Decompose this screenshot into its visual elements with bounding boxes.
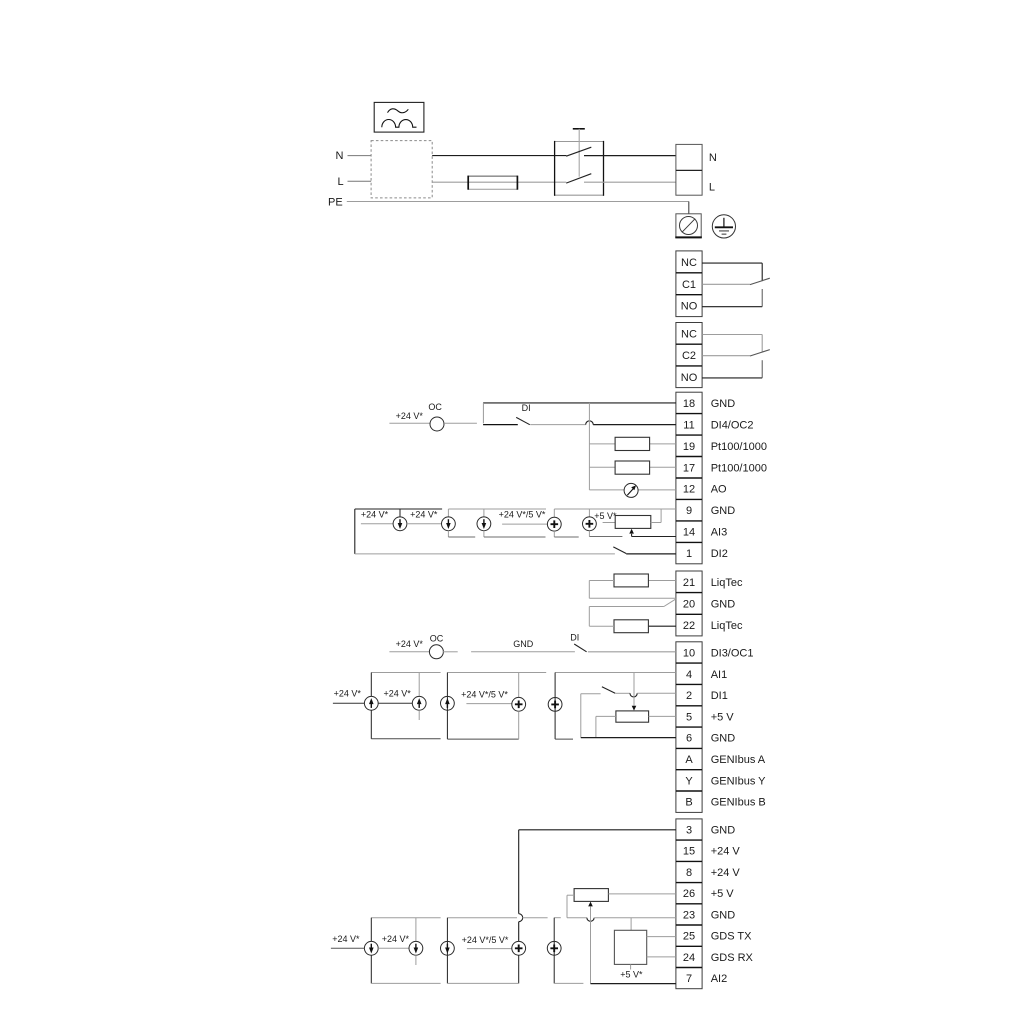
svg-text:GND: GND [711,505,736,517]
svg-text:1: 1 [686,548,692,560]
svg-text:+5 V: +5 V [711,888,735,900]
svg-text:GND: GND [711,398,736,410]
svg-text:17: 17 [683,462,695,474]
svg-text:2: 2 [686,690,692,702]
svg-text:+24 V: +24 V [711,867,741,879]
svg-text:+24 V*: +24 V* [334,689,362,699]
svg-text:4: 4 [686,669,692,681]
svg-text:GND: GND [711,733,736,745]
svg-text:A: A [685,754,693,766]
svg-text:PE: PE [328,197,343,209]
svg-text:GENIbus B: GENIbus B [711,797,766,809]
svg-text:AO: AO [711,484,727,496]
svg-text:N: N [709,152,717,164]
svg-text:DI: DI [570,632,579,642]
svg-text:20: 20 [683,598,695,610]
svg-text:26: 26 [683,888,695,900]
svg-text:3: 3 [686,825,692,837]
svg-text:+24 V*: +24 V* [361,510,389,520]
svg-text:+24 V*: +24 V* [396,411,424,421]
svg-text:12: 12 [683,484,695,496]
svg-text:Pt100/1000: Pt100/1000 [711,441,767,453]
svg-text:+5 V: +5 V [711,711,735,723]
svg-text:B: B [685,797,692,809]
svg-text:+5 V*: +5 V* [594,511,617,521]
svg-text:+24 V*/5 V*: +24 V*/5 V* [462,935,509,945]
svg-text:GDS RX: GDS RX [711,952,754,964]
svg-text:GND: GND [711,909,736,921]
svg-text:+24 V*: +24 V* [396,639,424,649]
svg-text:7: 7 [686,973,692,985]
svg-text:OC: OC [428,402,442,412]
svg-text:NC: NC [681,328,697,340]
svg-text:21: 21 [683,577,695,589]
svg-text:GENIbus A: GENIbus A [711,754,766,766]
svg-text:GND: GND [513,639,534,649]
svg-text:22: 22 [683,620,695,632]
svg-text:GDS TX: GDS TX [711,931,752,943]
svg-text:AI3: AI3 [711,527,728,539]
svg-text:+24 V*: +24 V* [332,934,360,944]
svg-text:5: 5 [686,711,692,723]
svg-text:DI: DI [522,403,531,413]
svg-text:25: 25 [683,931,695,943]
svg-text:GENIbus Y: GENIbus Y [711,775,766,787]
svg-text:LiqTec: LiqTec [711,620,743,632]
svg-text:DI2: DI2 [711,548,728,560]
svg-text:6: 6 [686,733,692,745]
svg-text:+24 V*/5 V*: +24 V*/5 V* [499,509,546,519]
svg-text:15: 15 [683,846,695,858]
svg-text:+24 V*: +24 V* [384,689,412,699]
svg-text:+24 V: +24 V [711,846,741,858]
svg-text:AI2: AI2 [711,973,728,985]
svg-text:N: N [336,150,344,162]
svg-text:+5 V*: +5 V* [620,970,643,980]
svg-text:Pt100/1000: Pt100/1000 [711,462,767,474]
svg-text:NO: NO [681,372,698,384]
svg-text:23: 23 [683,909,695,921]
svg-text:C1: C1 [682,279,696,291]
svg-text:OC: OC [430,634,444,644]
svg-text:8: 8 [686,867,692,879]
svg-text:24: 24 [683,952,695,964]
svg-text:+24 V*: +24 V* [410,510,438,520]
svg-text:11: 11 [683,419,694,431]
svg-text:19: 19 [683,441,695,453]
svg-text:NO: NO [681,301,698,313]
svg-text:9: 9 [686,505,692,517]
svg-text:+24 V*: +24 V* [382,934,410,944]
svg-text:18: 18 [683,398,695,410]
svg-text:GND: GND [711,598,736,610]
svg-text:AI1: AI1 [711,669,728,681]
svg-text:Y: Y [685,775,693,787]
svg-text:GND: GND [711,825,736,837]
svg-text:DI4/OC2: DI4/OC2 [711,419,754,431]
svg-text:DI1: DI1 [711,690,728,702]
svg-text:14: 14 [683,527,695,539]
svg-text:10: 10 [683,648,695,660]
svg-text:LiqTec: LiqTec [711,577,743,589]
svg-text:C2: C2 [682,350,696,362]
svg-text:L: L [709,182,715,194]
svg-text:L: L [338,176,344,188]
svg-text:DI3/OC1: DI3/OC1 [711,648,754,660]
svg-text:NC: NC [681,257,697,269]
svg-text:+24 V*/5 V*: +24 V*/5 V* [461,690,508,700]
